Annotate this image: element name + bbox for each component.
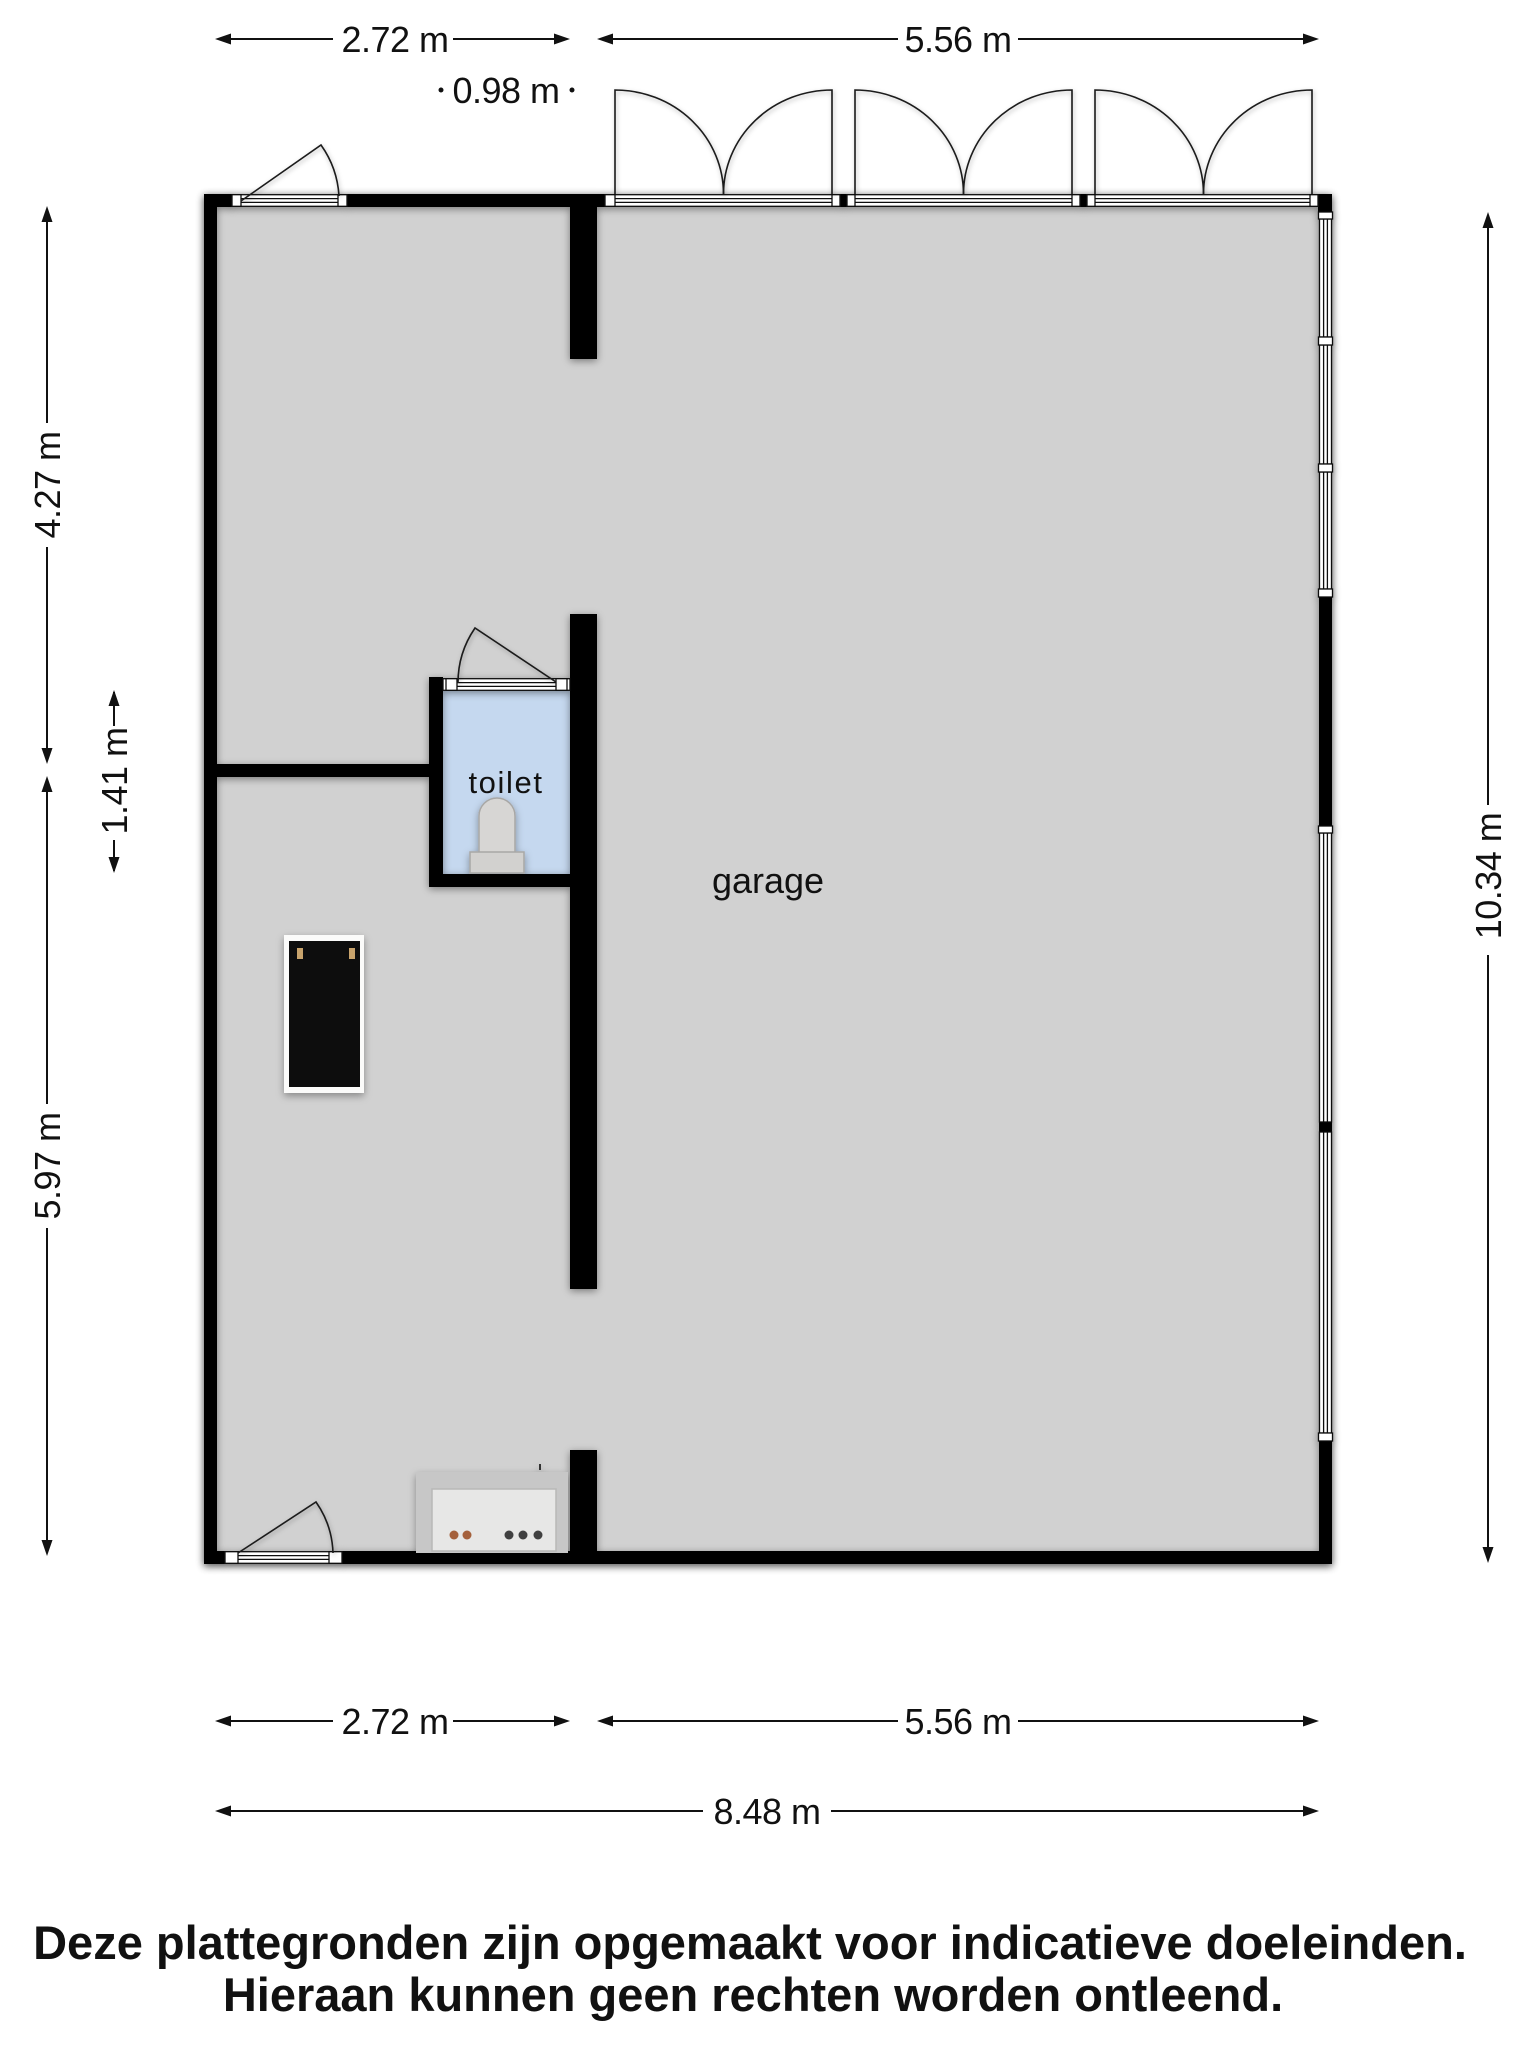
svg-text:2.72 m: 2.72 m bbox=[341, 19, 448, 60]
svg-text:Deze plattegronden zijn opgema: Deze plattegronden zijn opgemaakt voor i… bbox=[33, 1916, 1467, 1969]
svg-text:garage: garage bbox=[712, 860, 824, 901]
svg-text:toilet: toilet bbox=[468, 765, 543, 800]
svg-text:1.41 m: 1.41 m bbox=[94, 727, 135, 834]
svg-text:5.56 m: 5.56 m bbox=[904, 19, 1011, 60]
svg-text:0.98 m: 0.98 m bbox=[452, 70, 559, 111]
svg-text:5.97 m: 5.97 m bbox=[27, 1112, 68, 1219]
svg-text:8.48 m: 8.48 m bbox=[713, 1791, 820, 1832]
svg-text:Hieraan kunnen geen rechten wo: Hieraan kunnen geen rechten worden ontle… bbox=[223, 1968, 1283, 2021]
svg-text:5.56 m: 5.56 m bbox=[904, 1701, 1011, 1742]
svg-text:4.27 m: 4.27 m bbox=[27, 431, 68, 538]
svg-text:10.34 m: 10.34 m bbox=[1468, 813, 1509, 940]
svg-text:2.72 m: 2.72 m bbox=[341, 1701, 448, 1742]
